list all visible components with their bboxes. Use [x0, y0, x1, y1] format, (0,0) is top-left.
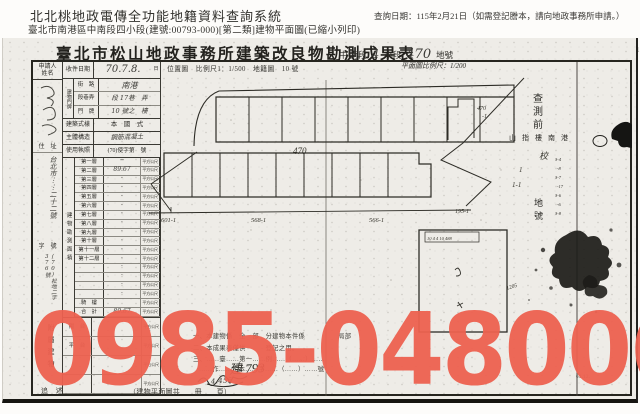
floor-area-value: · — [104, 202, 140, 210]
floor-area-value: · — [104, 229, 140, 237]
phone-number-watermark: 0985-048006 — [30, 300, 640, 400]
floor-area-value: · — [104, 176, 140, 184]
floor-row: 第十二層·平方公尺 — [75, 255, 160, 264]
lane-label: 段巷弄 — [74, 92, 99, 104]
floor-label: 第三層 — [75, 176, 104, 184]
area-unit: 平方公尺 — [140, 255, 160, 263]
location-map-scale-header: 位置圖 比例尺1：1/500 地籍圖 10 號 — [167, 63, 299, 73]
license-label: 使用執照 — [63, 145, 94, 157]
area-unit: 平方公尺 — [140, 202, 160, 210]
applicant-address: 台北市⋯⋯二十二號 — [41, 156, 57, 240]
floor-area-value: · — [104, 246, 140, 254]
floor-area-value: ─ — [104, 158, 140, 166]
area-unit: 平方公尺 — [140, 193, 160, 201]
floor-plan-scale: 平面圖比例尺：1/200 — [401, 61, 466, 71]
floor-label — [75, 273, 104, 281]
floor-label: 第十二層 — [75, 255, 104, 263]
street-value: 南港 — [99, 79, 160, 91]
floor-label — [75, 282, 104, 290]
floor-label: 第五層 — [75, 193, 104, 201]
area-unit: 平方公尺 — [140, 176, 160, 184]
structure-label: 主體構造 — [63, 132, 94, 144]
floor-row: 第五層·平方公尺 — [75, 193, 160, 202]
floor-row: 第十層·平方公尺 — [75, 237, 160, 246]
floor-area-value: · — [104, 255, 140, 263]
area-unit: 平方公尺 — [140, 184, 160, 192]
floor-row: ·平方公尺 — [75, 264, 160, 273]
floor-row: 第四層·平方公尺 — [75, 184, 160, 193]
floor-label: 第四層 — [75, 184, 104, 192]
floor-area-value: 89.67 — [104, 167, 140, 175]
floor-label — [75, 264, 104, 272]
area-unit: 平方公尺 — [140, 229, 160, 237]
docno-label: 字 號 — [33, 242, 62, 252]
floor-area-value: · — [104, 184, 140, 192]
floor-row: 第九層·平方公尺 — [75, 229, 160, 238]
floor-area-value: · — [104, 193, 140, 201]
floor-label: 第一層 — [75, 158, 104, 166]
document-identifier-line: 臺北市南港區中南段四小段(建號:00793-000)[第二類]建物平面圖(已縮小… — [28, 22, 360, 36]
floor-area-value: · — [104, 220, 140, 228]
received-date-suffix: 日 — [152, 62, 160, 78]
floor-row: ·平方公尺 — [75, 282, 160, 291]
floor-area-value: · — [104, 282, 140, 290]
floor-row: 第七層·平方公尺 — [75, 211, 160, 220]
building-style-label: 建築式樣 — [63, 119, 94, 131]
applicant-label: 申請人 — [38, 64, 56, 71]
area-unit: 平方公尺 — [140, 167, 160, 175]
door-number-label: 門 牌 — [74, 106, 99, 118]
lane-value: 段 17巷 弄 — [99, 92, 160, 104]
floor-area-value: · — [104, 264, 140, 272]
area-unit: 平方公尺 — [140, 211, 160, 219]
handwritten-applicant-name — [35, 82, 61, 140]
area-unit: 平方公尺 — [140, 273, 160, 281]
received-date-label: 收件日期 — [63, 62, 94, 78]
floor-row: 第八層·平方公尺 — [75, 220, 160, 229]
floor-area-value: · — [104, 211, 140, 219]
name-label: 姓名 — [41, 71, 53, 78]
area-unit: 平方公尺 — [140, 246, 160, 254]
floor-area-value: · — [104, 237, 140, 245]
floor-row: ·平方公尺 — [75, 273, 160, 282]
floor-label: 第十一層 — [75, 246, 104, 254]
area-unit: 平方公尺 — [140, 220, 160, 228]
door-group-label: 建物門牌 — [63, 79, 74, 118]
street-label: 街 路 — [74, 79, 99, 91]
building-style-value: 本 國 式 — [94, 119, 160, 131]
door-number-value: 10 號之 樓 — [99, 106, 160, 118]
floor-row: 第三層·平方公尺 — [75, 176, 160, 185]
structure-value: 鋼筋混凝土 — [94, 131, 160, 145]
area-unit: 平方公尺 — [140, 237, 160, 245]
floor-label: 第六層 — [75, 202, 104, 210]
received-date-value: 70.7.8. — [94, 62, 152, 78]
area-unit: 平方公尺 — [140, 158, 160, 166]
license-value: (70)使字第 號 — [94, 145, 160, 157]
floor-label: 第十層 — [75, 237, 104, 245]
floor-row: 第六層·平方公尺 — [75, 202, 160, 211]
floor-label: 第七層 — [75, 211, 104, 219]
query-date-info: 查詢日期：115年2月21日（如需登記謄本，請向地政事務所申請。） — [374, 10, 624, 22]
area-unit: 平方公尺 — [140, 282, 160, 290]
floor-row: 第二層89.67平方公尺 — [75, 167, 160, 176]
floor-row: 第十一層·平方公尺 — [75, 246, 160, 255]
address-label: 住 址 — [38, 144, 56, 151]
floor-label: 第八層 — [75, 220, 104, 228]
area-unit: 平方公尺 — [140, 264, 160, 272]
floor-area-value: · — [104, 273, 140, 281]
section-number: 4 — [372, 47, 380, 61]
floor-label: 第二層 — [75, 167, 104, 175]
floor-label: 第九層 — [75, 229, 104, 237]
